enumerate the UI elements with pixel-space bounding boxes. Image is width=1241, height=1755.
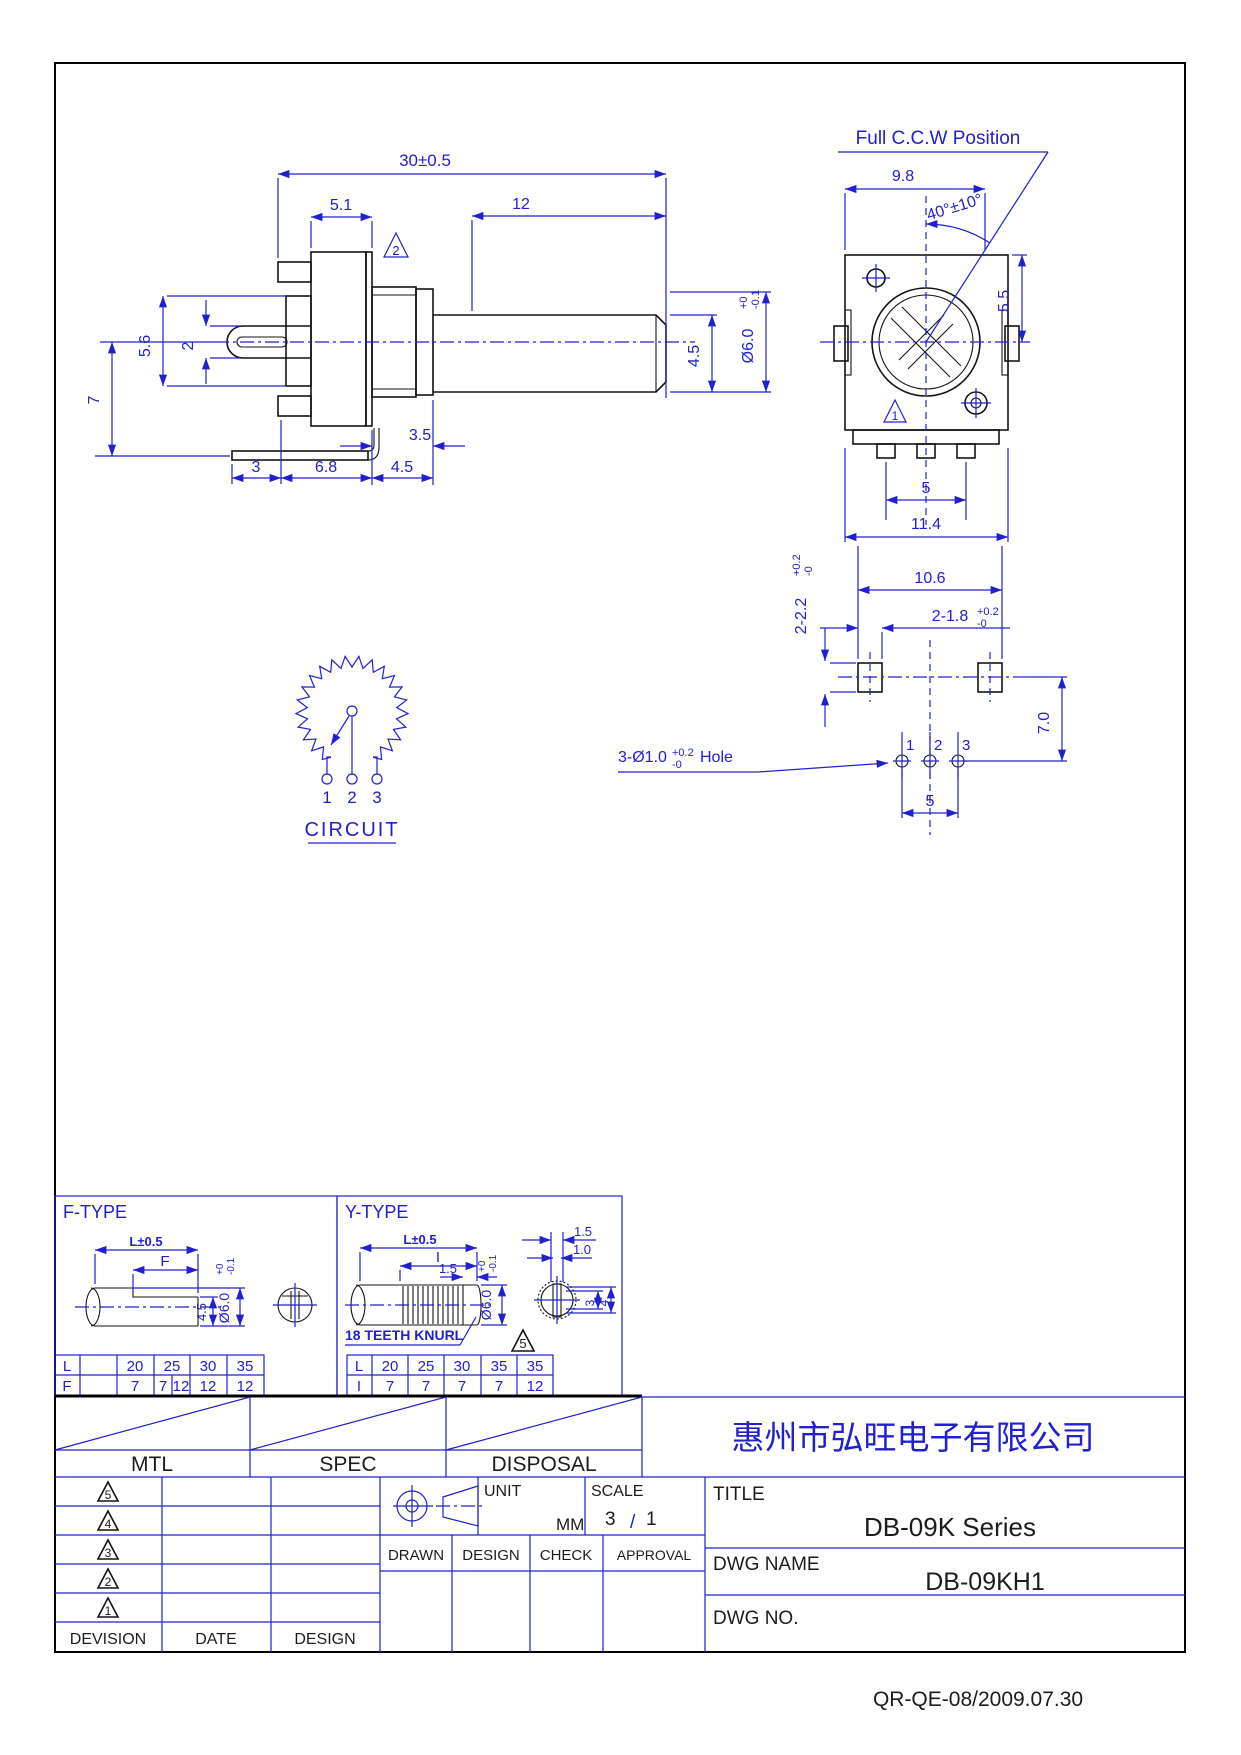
y-dim-15: 1.5: [439, 1261, 457, 1276]
y-rev-triangle: 5: [519, 1336, 526, 1351]
dim-1-8-tol-bot: -0: [977, 618, 987, 630]
circuit-diagram: 1 2 3 CIRCUIT: [296, 656, 408, 843]
f-type-section: F-TYPE L±0.5 F 4.5 Ø6.0 +0 -0.1: [55, 1196, 337, 1396]
revision-triangles: 5 4 3 2 1: [98, 1482, 118, 1618]
y-table-cell: 7: [422, 1378, 430, 1395]
rev-1: 1: [105, 1604, 112, 1618]
f-dim-45: 4.5: [194, 1303, 209, 1321]
f-table-cell: 25: [164, 1358, 181, 1375]
sheet-frame: [55, 63, 1185, 1652]
front-view-dims: Full C.C.W Position 9.8 40°±10° 5.5 1 5 …: [820, 128, 1048, 542]
unit-label: UNIT: [484, 1483, 522, 1500]
side-rev-triangle: 2: [392, 243, 399, 258]
y-table-cell: 35: [491, 1358, 508, 1375]
y-dia-tol-bot: -0.1: [488, 1254, 499, 1272]
disposal-label: DISPOSAL: [491, 1453, 596, 1476]
dim-5-6: 5.6: [137, 335, 154, 357]
y-table-cell: 30: [454, 1358, 471, 1375]
dim-1-8: 2-1.8: [932, 608, 969, 625]
hole-note: 3-Ø1.0: [618, 749, 667, 766]
pcb-view: 10.6 2-1.8 +0.2 -0 2-2.2 +0.2 -0 1 2 3 7…: [618, 546, 1067, 835]
dim-30: 30±0.5: [399, 151, 451, 170]
circuit-pin1: 1: [322, 788, 331, 807]
devision-label: DEVISION: [70, 1631, 146, 1648]
f-table-cell: F: [62, 1378, 71, 1395]
dim-12: 12: [512, 196, 530, 213]
design-label: DESIGN: [294, 1631, 355, 1648]
y-dia-main: Ø6.0: [478, 1290, 494, 1321]
y-front-3: 3: [583, 1299, 597, 1306]
ccw-title: Full C.C.W Position: [856, 128, 1021, 149]
y-type-table: L 20 25 30 35 35 I 7 7 7 7 12: [347, 1355, 553, 1396]
rev-2: 2: [105, 1575, 112, 1589]
dim-4-5-shaft: 4.5: [686, 345, 703, 367]
rev-3: 3: [105, 1546, 112, 1560]
drawing-sheet: 30±0.5 5.1 12 2 5.6 2 7 4.5 Ø6.0: [0, 0, 1241, 1755]
dim-9-8: 9.8: [892, 168, 914, 185]
y-front-15: 1.5: [574, 1224, 592, 1239]
footer-code: QR-QE-08/2009.07.30: [873, 1688, 1083, 1711]
y-front-4: 4: [597, 1299, 611, 1306]
svg-text:/: /: [630, 1512, 636, 1533]
y-front-10: 1.0: [573, 1242, 591, 1257]
svg-text:3: 3: [605, 1509, 616, 1530]
dim-7-0: 7.0: [1036, 712, 1053, 734]
y-table-cell: I: [357, 1378, 361, 1395]
dim-5-front: 5: [922, 480, 931, 497]
approval-label: APPROVAL: [617, 1547, 692, 1563]
design2-label: DESIGN: [462, 1547, 520, 1564]
y-type-section: Y-TYPE L±0.5 I 1.5 Ø6.0 +0 -0.1 18 TEETH…: [337, 1196, 622, 1396]
circuit-pin3: 3: [372, 788, 381, 807]
y-table-cell: 7: [495, 1378, 503, 1395]
front-view: Full C.C.W Position 9.8 40°±10° 5.5 1 5 …: [820, 128, 1048, 542]
dim-10-6: 10.6: [914, 570, 945, 587]
f-dia-tol-bot: -0.1: [226, 1257, 237, 1275]
f-table-cell: 12: [200, 1378, 217, 1395]
f-table-cell: 12: [173, 1378, 190, 1395]
f-table-cell: 20: [127, 1358, 144, 1375]
dwg-no-label: DWG NO.: [713, 1608, 799, 1629]
dim-5-1: 5.1: [330, 197, 352, 214]
dim-4-5-bottom: 4.5: [391, 459, 413, 476]
dim-40deg: 40°±10°: [925, 191, 985, 224]
dim-5-5: 5.5: [996, 290, 1013, 312]
unit-value: MM: [556, 1515, 584, 1534]
f-table-cell: 12: [237, 1378, 254, 1395]
dwg-name-label: DWG NAME: [713, 1554, 820, 1575]
company-name: 惠州市弘旺电子有限公司: [732, 1419, 1095, 1456]
drawn-label: DRAWN: [388, 1547, 444, 1564]
y-table-cell: L: [355, 1358, 363, 1375]
f-table-cell: 35: [237, 1358, 254, 1375]
dim-2-2-tol-bot: -0: [803, 566, 815, 576]
f-type-table: L 20 25 30 35 F 7 7 12 12 12: [55, 1355, 264, 1396]
y-table-cell: 35: [527, 1358, 544, 1375]
spec-label: SPEC: [319, 1453, 376, 1476]
scale-value: 3 / 1: [605, 1509, 657, 1533]
side-view-dims: 30±0.5 5.1 12 2 5.6 2 7 4.5 Ø6.0: [86, 151, 771, 485]
y-type-front: 1.5 1.0 3 4: [522, 1224, 616, 1324]
y-knurl-note: 18 TEETH KNURL: [345, 1327, 464, 1343]
f-dia-main: Ø6.0: [216, 1293, 232, 1324]
f-table-cell: 7: [159, 1378, 167, 1395]
y-table-cell: 7: [458, 1378, 466, 1395]
title-block: MTL SPEC DISPOSAL 惠州市弘旺电子有限公司 5 4 3 2 1 …: [55, 1396, 1185, 1652]
f-dim-l: L±0.5: [129, 1234, 162, 1249]
dim-2: 2: [180, 341, 197, 350]
hole-note-tol-bot: -0: [672, 759, 682, 771]
f-dim-f: F: [160, 1253, 169, 1270]
y-table-cell: 20: [382, 1358, 399, 1375]
svg-text:1: 1: [646, 1509, 657, 1530]
dim-dia6-main: Ø6.0: [740, 329, 757, 364]
dim-6-8: 6.8: [315, 459, 337, 476]
circuit-label: CIRCUIT: [304, 819, 399, 841]
dim-1-8-tol-top: +0.2: [977, 606, 999, 618]
mtl-label: MTL: [131, 1453, 173, 1476]
y-table-cell: 7: [386, 1378, 394, 1395]
circuit-pin2: 2: [347, 788, 356, 807]
hole-note-tol-top: +0.2: [672, 747, 694, 759]
f-type-front: [273, 1283, 317, 1327]
f-type-label: F-TYPE: [63, 1202, 127, 1222]
dim-2-2-tol-top: +0.2: [791, 554, 803, 576]
f-dia-tol-top: +0: [215, 1263, 226, 1275]
f-table-cell: 7: [131, 1378, 139, 1395]
dim-7: 7: [86, 395, 103, 404]
f-table-cell: L: [63, 1358, 71, 1375]
y-type-shaft: L±0.5 I 1.5 Ø6.0 +0 -0.1 18 TEETH KNURL …: [345, 1232, 534, 1351]
dim-3-5: 3.5: [409, 427, 431, 444]
scale-label: SCALE: [591, 1483, 643, 1500]
f-type-shaft: L±0.5 F 4.5 Ø6.0 +0 -0.1: [75, 1234, 245, 1326]
y-dim-l: L±0.5: [403, 1232, 436, 1247]
rev-5: 5: [105, 1488, 112, 1502]
y-table-cell: 12: [527, 1378, 544, 1395]
dim-dia6-tol-top: +0: [738, 296, 750, 309]
pcb-view-dims: 10.6 2-1.8 +0.2 -0 2-2.2 +0.2 -0 1 2 3 7…: [618, 546, 1067, 835]
pcb-pin2: 2: [934, 737, 942, 754]
title-label: TITLE: [713, 1484, 765, 1505]
y-dia-tol-top: +0: [477, 1260, 488, 1272]
date-label: DATE: [195, 1631, 236, 1648]
hole-note-suffix: Hole: [700, 749, 733, 766]
pcb-pin1: 1: [906, 737, 914, 754]
side-view: 30±0.5 5.1 12 2 5.6 2 7 4.5 Ø6.0: [86, 151, 771, 485]
pcb-pin3: 3: [962, 737, 970, 754]
dim-2-2: 2-2.2: [793, 598, 810, 635]
y-type-label: Y-TYPE: [345, 1202, 408, 1222]
f-table-cell: 30: [200, 1358, 217, 1375]
projection-symbol: [393, 1485, 484, 1527]
dwg-name-value: DB-09KH1: [925, 1568, 1045, 1596]
front-rev-triangle: 1: [892, 409, 899, 423]
rev-4: 4: [105, 1517, 112, 1531]
side-view-part: [227, 252, 666, 460]
dim-5-pcb: 5: [926, 793, 935, 810]
title-value: DB-09K Series: [864, 1512, 1036, 1542]
y-table-cell: 25: [418, 1358, 435, 1375]
dim-3: 3: [252, 459, 261, 476]
dim-dia6-tol-bot: -0.1: [750, 290, 762, 309]
check-label: CHECK: [540, 1547, 593, 1564]
dim-11-4: 11.4: [911, 516, 941, 533]
